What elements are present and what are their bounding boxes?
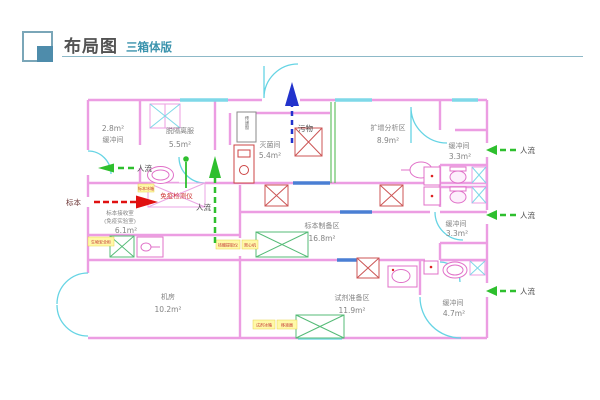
svg-text:离心机: 离心机 xyxy=(244,242,256,248)
room-buffer-bottom-right: 缓冲间 4.7m² xyxy=(443,298,466,318)
svg-text:4.7m²: 4.7m² xyxy=(443,309,465,318)
svg-text:污物: 污物 xyxy=(298,123,313,133)
slide-header: 布局图 三箱体版 xyxy=(0,0,600,70)
glass-wall xyxy=(331,102,335,183)
room-sterilization: 灭菌间 5.4m² xyxy=(259,140,281,160)
svg-text:试剂准备区: 试剂准备区 xyxy=(335,293,370,302)
page-subtitle: 三箱体版 xyxy=(126,39,172,55)
svg-text:11.9m²: 11.9m² xyxy=(338,306,365,315)
svg-text:标本: 标本 xyxy=(66,197,81,207)
pass-window: 传递窗 xyxy=(237,112,256,142)
svg-text:缓冲间: 缓冲间 xyxy=(446,219,467,228)
room-buffer-top-right: 缓冲间 3.3m² xyxy=(449,141,472,161)
svg-text:人流: 人流 xyxy=(137,163,152,173)
people-flow-arrow-left: 人流 xyxy=(98,163,152,173)
header-divider xyxy=(62,56,583,57)
people-flow-arrow-right-2: 人流 xyxy=(486,210,535,220)
svg-text:3.3m²: 3.3m² xyxy=(446,229,468,238)
svg-text:标本接收室: 标本接收室 xyxy=(106,209,134,217)
dot xyxy=(430,266,433,269)
eyewash-station xyxy=(137,237,163,257)
people-flow-arrow-right-1: 人流 xyxy=(486,145,535,155)
walls xyxy=(88,100,487,338)
slide: 布局图 三箱体版 传递窗 xyxy=(0,0,600,400)
svg-text:人流: 人流 xyxy=(196,202,211,212)
svg-text:标本冰箱: 标本冰箱 xyxy=(138,185,154,191)
svg-text:6.1m²: 6.1m² xyxy=(115,226,137,235)
room-amplification: 扩增分析区 8.9m² xyxy=(371,123,406,145)
svg-text:5.4m²: 5.4m² xyxy=(259,151,281,160)
cistern-boxes xyxy=(424,167,440,274)
toilet-icons xyxy=(450,167,466,203)
svg-text:2.8m²: 2.8m² xyxy=(102,124,124,133)
tap-dot xyxy=(392,269,394,271)
svg-text:缓冲间: 缓冲间 xyxy=(443,298,464,307)
immuno-analyzer-label: 免疫检测仪 xyxy=(160,191,193,200)
dot xyxy=(431,195,434,198)
svg-text:人流: 人流 xyxy=(520,286,535,296)
svg-text:缓冲间: 缓冲间 xyxy=(449,141,470,150)
autoclave-icon xyxy=(234,145,254,183)
svg-text:人流: 人流 xyxy=(520,210,535,220)
people-flow-arrow-right-3: 人流 xyxy=(486,286,535,296)
svg-text:3.3m²: 3.3m² xyxy=(449,152,471,161)
svg-text:5.5m²: 5.5m² xyxy=(169,140,191,149)
svg-text:核酸提取仪: 核酸提取仪 xyxy=(218,242,238,248)
svg-text:生物安全柜: 生物安全柜 xyxy=(91,239,111,245)
room-buffer-mid-right: 缓冲间 3.3m² xyxy=(446,219,469,238)
drain-box-icon xyxy=(150,104,180,128)
svg-text:脱隔离服: 脱隔离服 xyxy=(166,126,194,135)
svg-text:移液器: 移液器 xyxy=(281,322,293,328)
svg-text:机房: 机房 xyxy=(161,292,175,301)
room-reagent-prep: 试剂准备区 11.9m² xyxy=(335,293,370,315)
room-machine: 机房 10.2m² xyxy=(154,292,181,314)
svg-text:灭菌间: 灭菌间 xyxy=(260,140,281,149)
page-title: 布局图 xyxy=(64,32,118,57)
logo-icon-fill xyxy=(37,46,53,62)
svg-text:标本制备区: 标本制备区 xyxy=(305,221,340,230)
svg-text:10.2m²: 10.2m² xyxy=(154,305,181,314)
room-undress: 脱隔离服 5.5m² xyxy=(166,126,194,149)
svg-text:缓冲间: 缓冲间 xyxy=(103,135,124,144)
room-specimen-prep: 标本制备区 16.8m² xyxy=(305,221,340,243)
svg-text:8.9m²: 8.9m² xyxy=(377,136,399,145)
room-buffer-top-left: 2.8m² 缓冲间 xyxy=(102,124,124,144)
svg-text:(免疫实验室): (免疫实验室) xyxy=(104,217,136,225)
svg-text:试剂冰箱: 试剂冰箱 xyxy=(256,322,272,328)
room-specimen-receive: 标本接收室 (免疫实验室) 6.1m² xyxy=(104,209,137,235)
svg-text:传递窗: 传递窗 xyxy=(244,115,249,131)
specimen-flow-arrow: 标本 xyxy=(66,196,158,209)
dot xyxy=(431,175,434,178)
svg-text:16.8m²: 16.8m² xyxy=(308,234,335,243)
svg-text:人流: 人流 xyxy=(520,145,535,155)
svg-text:扩增分析区: 扩增分析区 xyxy=(371,123,406,132)
window-segments xyxy=(180,100,478,338)
